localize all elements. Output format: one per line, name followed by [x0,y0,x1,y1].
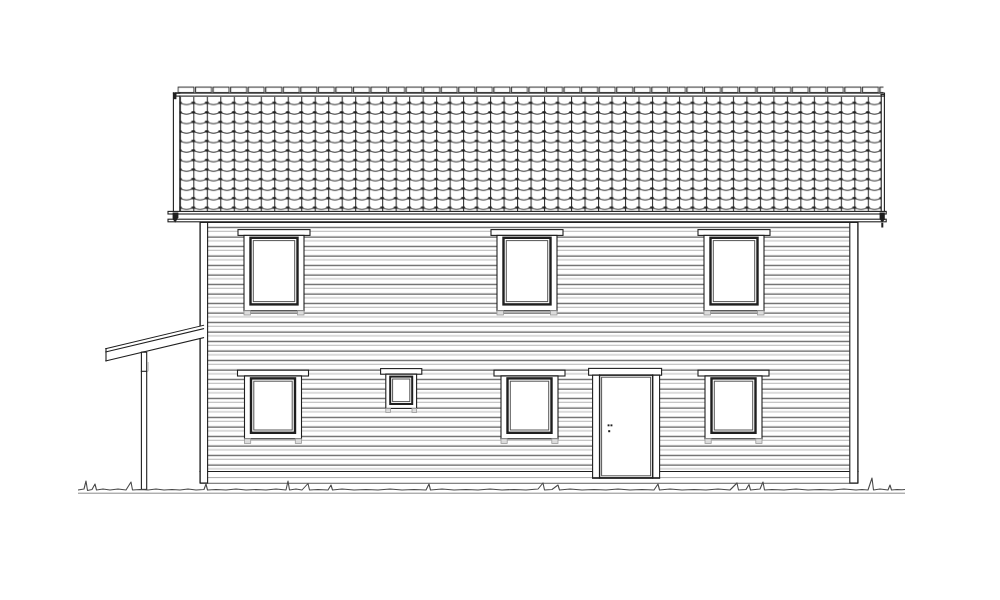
window-upper-middle [491,230,563,315]
window-sill-foot [501,439,507,444]
window-sill-foot [386,408,391,412]
corner-board-left [200,222,207,483]
window-header-board [381,369,422,375]
window-sill-foot [244,311,251,315]
door-header-board [589,368,662,375]
window-header-board [698,370,769,376]
window-header-board [238,370,309,376]
window-lower-middle [494,370,565,443]
porch-roof-fill [106,325,204,361]
roof [168,87,886,228]
window-sill-foot [704,311,711,315]
window-glass [390,377,412,404]
roof-pantiles [180,97,881,211]
window-sill-foot [497,311,504,315]
ridge-board [176,93,885,96]
barge-board-left [173,93,180,213]
window-upper-left [238,230,310,315]
window-sill-foot [245,439,251,444]
window-lower-left [238,370,309,443]
window-glass [251,238,298,305]
barge-top-cap [173,93,176,99]
window-sill-foot [551,311,558,315]
entrance-door [589,368,662,478]
window-sill-foot [295,439,301,444]
window-sill-foot [298,311,305,315]
window-glass [711,238,758,305]
window-header-board [698,230,770,236]
window-glass [251,378,295,432]
window-upper-right [698,230,770,315]
door-slab [600,375,653,478]
window-sill-foot [412,408,417,412]
door-trim-right [653,375,660,478]
window-header-board [491,230,563,236]
window-sill-foot [552,439,558,444]
porch-post [141,352,148,489]
window-header-board [494,370,565,376]
house-elevation-svg [0,0,1000,600]
window-header-board [238,230,310,236]
window-sill-foot [705,439,711,444]
window-sill-foot [756,439,762,444]
door-trim-left [593,375,600,478]
porch [106,325,204,489]
window-small-utility [381,369,422,413]
roof-edge-right [881,95,884,213]
window-glass [508,378,552,432]
window-glass [712,378,756,432]
window-sill-foot [758,311,765,315]
window-lower-right [698,370,769,443]
elevation-drawing-canvas [0,0,1000,600]
window-glass [504,238,551,305]
ridge-caps [178,87,884,93]
corner-board-right [850,222,858,483]
wall-skirt-band [200,472,858,483]
